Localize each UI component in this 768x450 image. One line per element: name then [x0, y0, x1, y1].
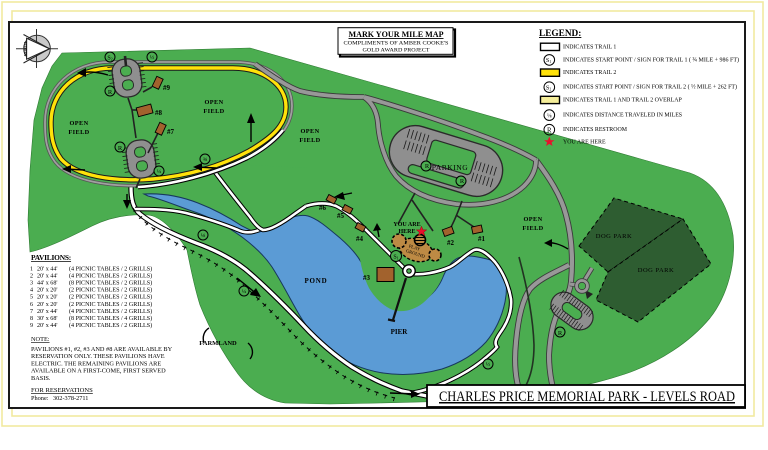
svg-text:½: ½	[486, 361, 490, 368]
svg-text:(2 PICNIC TABLES / 2 GRILLS): (2 PICNIC TABLES / 2 GRILLS)	[69, 301, 152, 308]
svg-text:#9: #9	[163, 84, 171, 92]
svg-text:(8 PICNIC TABLES / 4 GRILLS): (8 PICNIC TABLES / 4 GRILLS)	[69, 315, 152, 322]
svg-text:(2 PICNIC TABLES / 2 GRILLS): (2 PICNIC TABLES / 2 GRILLS)	[69, 287, 152, 294]
svg-text:COMPLIMENTS OF AMBER COOKE'S: COMPLIMENTS OF AMBER COOKE'S	[344, 41, 449, 47]
svg-text:PIER: PIER	[391, 328, 409, 336]
svg-text:S1: S1	[393, 255, 398, 261]
svg-text:NOTE:: NOTE:	[31, 336, 50, 343]
svg-text:½: ½	[150, 54, 154, 61]
svg-text:R: R	[425, 163, 430, 170]
svg-text:POND: POND	[304, 277, 327, 285]
svg-text:5: 5	[30, 295, 33, 301]
svg-text:#3: #3	[363, 274, 371, 282]
svg-text:#8: #8	[155, 109, 163, 117]
svg-text:(4 PICNIC TABLES / 2 GRILLS): (4 PICNIC TABLES / 2 GRILLS)	[69, 322, 152, 329]
svg-text:INDICATES START POINT / SIGN: INDICATES START POINT / SIGN FOR TRAIL 2…	[563, 84, 737, 91]
svg-text:#2: #2	[447, 239, 455, 247]
svg-text:INDICATES START POINT / SIGN F: INDICATES START POINT / SIGN FOR TRAIL 1…	[563, 56, 739, 63]
svg-text:OPEN: OPEN	[204, 99, 223, 106]
svg-text:NORTH: NORTH	[23, 42, 28, 57]
svg-text:20' x 44': 20' x 44'	[37, 273, 57, 279]
svg-text:4: 4	[30, 288, 33, 294]
svg-text:HERE: HERE	[398, 229, 415, 235]
svg-text:PAVILIONS #1, #2, #3 AND #8 AR: PAVILIONS #1, #2, #3 AND #8 ARE AVAILABL…	[31, 346, 173, 353]
svg-text:FOR RESERVATIONS: FOR RESERVATIONS	[31, 387, 93, 394]
svg-text:INDICATES TRAIL 1: INDICATES TRAIL 1	[563, 45, 616, 51]
svg-text:INDICATES TRAIL 2: INDICATES TRAIL 2	[563, 70, 616, 76]
svg-text:¼: ¼	[157, 169, 161, 175]
svg-text:FARMLAND: FARMLAND	[199, 340, 237, 347]
svg-text:20' x 20': 20' x 20'	[37, 302, 57, 308]
svg-text:OPEN: OPEN	[300, 128, 319, 135]
svg-text:OPEN: OPEN	[523, 216, 542, 223]
svg-text:YOU ARE: YOU ARE	[393, 222, 420, 228]
svg-text:3: 3	[30, 281, 33, 287]
svg-text:YOU ARE HERE: YOU ARE HERE	[563, 139, 606, 145]
svg-text:AVAILABLE ON A FIRST-COME, FIR: AVAILABLE ON A FIRST-COME, FIRST SERVED	[31, 368, 166, 375]
svg-text:⅛: ⅛	[547, 113, 552, 119]
svg-text:#1: #1	[478, 235, 486, 243]
svg-text:MARK YOUR MILE MAP: MARK YOUR MILE MAP	[349, 29, 445, 39]
svg-text:20' x 20': 20' x 20'	[37, 288, 57, 294]
svg-text:20' x 20': 20' x 20'	[37, 295, 57, 301]
svg-text:#4: #4	[356, 235, 364, 243]
svg-text:6: 6	[30, 302, 33, 308]
svg-text:(4 PICNIC TABLES / 2 GRILLS): (4 PICNIC TABLES / 2 GRILLS)	[69, 308, 152, 315]
svg-text:R: R	[118, 145, 123, 152]
svg-text:8: 8	[30, 316, 33, 322]
svg-text:R: R	[108, 89, 113, 96]
svg-text:#6: #6	[319, 204, 327, 212]
svg-text:INDICATES TRAIL 1 AND TRAIL 2: INDICATES TRAIL 1 AND TRAIL 2 OVERLAP	[563, 98, 683, 104]
svg-text:FIELD: FIELD	[68, 129, 89, 136]
svg-text:BASIS.: BASIS.	[31, 375, 51, 382]
svg-text:7: 7	[30, 309, 33, 315]
svg-text:R: R	[460, 178, 465, 185]
svg-text:30' x 68': 30' x 68'	[37, 316, 57, 322]
svg-text:9: 9	[30, 323, 33, 329]
svg-text:2: 2	[30, 273, 33, 279]
svg-text:S2: S2	[107, 56, 112, 62]
svg-text:ELECTRIC. THE REMAINING PAVILI: ELECTRIC. THE REMAINING PAVILIONS ARE	[31, 360, 161, 367]
svg-text:44' x 68': 44' x 68'	[37, 281, 57, 287]
svg-text:¼: ¼	[242, 289, 246, 295]
svg-text:20' x 44': 20' x 44'	[37, 266, 57, 272]
svg-text:#7: #7	[167, 128, 175, 136]
svg-text:1: 1	[30, 266, 33, 272]
svg-text:20' x 44': 20' x 44'	[37, 309, 57, 315]
svg-text:(4 PICNIC TABLES / 2 GRILLS): (4 PICNIC TABLES / 2 GRILLS)	[69, 272, 152, 279]
svg-text:(8 PICNIC TABLES / 2 GRILLS): (8 PICNIC TABLES / 2 GRILLS)	[69, 280, 152, 287]
svg-text:RESERVATION ONLY. THESE PAVILI: RESERVATION ONLY. THESE PAVILIONS HAVE	[31, 353, 165, 360]
svg-text:#5: #5	[337, 212, 345, 220]
svg-text:(4 PICNIC TABLES / 2 GRILLS): (4 PICNIC TABLES / 2 GRILLS)	[69, 265, 152, 272]
svg-text:(2 PICNIC TABLES / 2 GRILLS): (2 PICNIC TABLES / 2 GRILLS)	[69, 294, 152, 301]
svg-text:PARKING: PARKING	[432, 163, 469, 172]
svg-text:OPEN: OPEN	[69, 120, 88, 127]
svg-text:FIELD: FIELD	[299, 137, 320, 144]
svg-text:INDICATES DISTANCE TRAVELED IN: INDICATES DISTANCE TRAVELED IN MILES	[563, 113, 682, 119]
svg-text:Phone:: Phone:	[31, 395, 49, 402]
svg-text:CHARLES PRICE MEMORIAL PARK -: CHARLES PRICE MEMORIAL PARK - LEVELS ROA…	[439, 389, 735, 405]
svg-text:LEGEND:: LEGEND:	[539, 29, 581, 39]
svg-text:R: R	[558, 330, 563, 337]
svg-text:PAVILIONS:: PAVILIONS:	[31, 253, 71, 262]
svg-text:FIELD: FIELD	[522, 225, 543, 232]
svg-text:FIELD: FIELD	[203, 108, 224, 115]
svg-text:INDICATES RESTROOM: INDICATES RESTROOM	[563, 127, 628, 133]
svg-text:302-378-2711: 302-378-2711	[53, 395, 88, 402]
svg-text:GOLD AWARD PROJECT: GOLD AWARD PROJECT	[363, 48, 431, 54]
svg-text:20' x 44': 20' x 44'	[37, 323, 57, 329]
svg-text:DOG PARK: DOG PARK	[596, 233, 632, 240]
svg-text:DOG PARK: DOG PARK	[638, 267, 674, 274]
svg-text:R: R	[547, 127, 552, 134]
